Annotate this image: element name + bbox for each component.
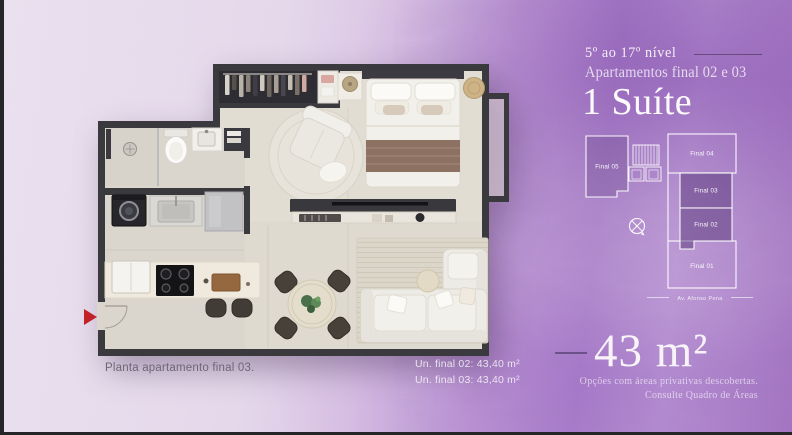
keyplan-label-final-05: Final 05: [595, 164, 619, 171]
keyplan-stair-treads: [636, 145, 657, 165]
keyplan-label-final-04: Final 04: [690, 151, 714, 158]
level-range: 5º ao 17º nível: [585, 45, 676, 62]
building-keyplan: Final 05 Final 04 Final 03 Final 02 Fina…: [577, 131, 762, 306]
keyplan-label-final-03: Final 03: [694, 188, 718, 195]
area-notes: Opções com áreas privativas descobertas.…: [580, 375, 758, 403]
area-note-line: Consulte Quadro de Áreas: [580, 389, 758, 403]
keyplan-label-final-02: Final 02: [694, 222, 718, 229]
area-dash: [555, 352, 587, 354]
keyplan-unit-final-02: [680, 208, 732, 249]
info-panel: 5º ao 17º nível Apartamentos final 02 e …: [0, 0, 792, 435]
suite-title: 1 Suíte: [582, 80, 692, 124]
keyplan-label-final-01: Final 01: [690, 263, 714, 270]
area-value: 43 m²: [594, 324, 708, 378]
street-label-row: Av. Afonso Pena: [647, 296, 753, 302]
header-rule: [694, 54, 762, 55]
area-note-line: Opções com áreas privativas descobertas.: [580, 375, 758, 389]
north-compass-icon: [630, 219, 645, 236]
street-label: Av. Afonso Pena: [677, 296, 722, 302]
presentation-slide: Planta apartamento final 03. Un. final 0…: [0, 0, 792, 435]
keyplan-stairs: [633, 145, 659, 165]
entrance-arrow-icon: [84, 309, 97, 325]
frame-edge-left: [0, 0, 4, 435]
